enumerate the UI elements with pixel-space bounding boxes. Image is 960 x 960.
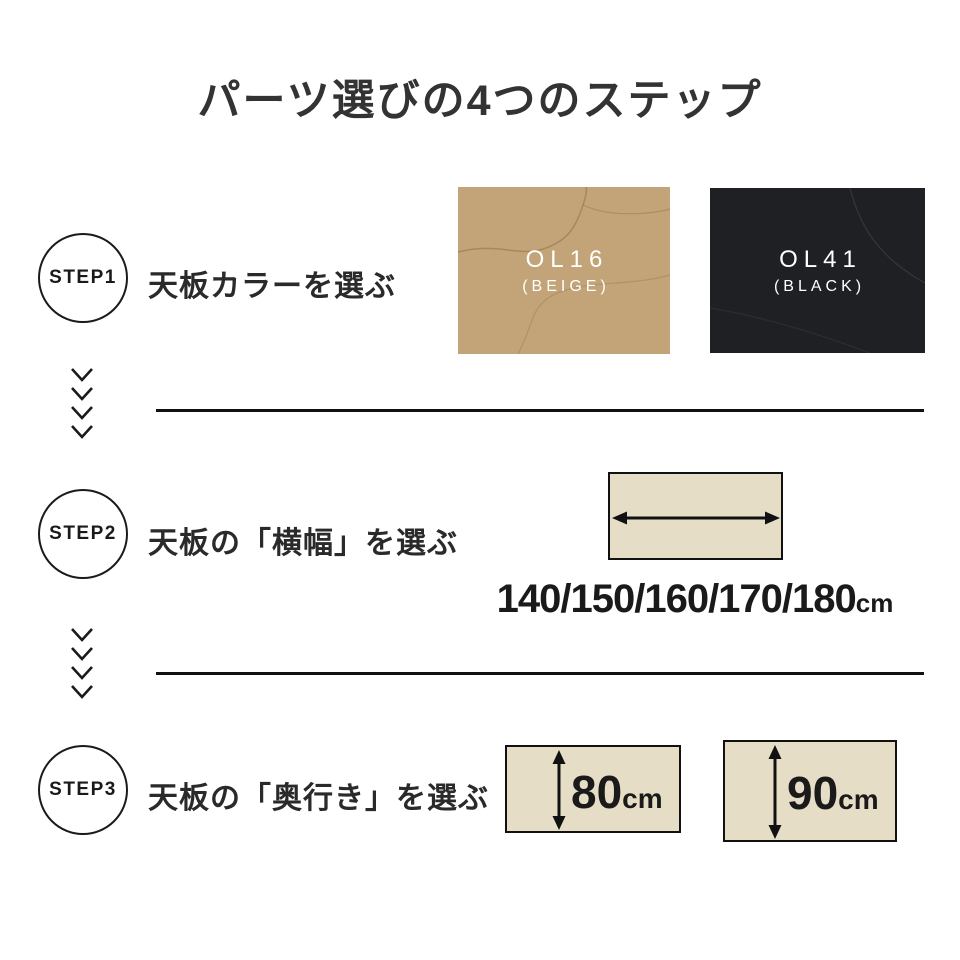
step3-badge-label: STEP3 bbox=[49, 779, 117, 801]
vertical-double-arrow-icon bbox=[767, 745, 783, 839]
chevron-down-icon bbox=[70, 424, 94, 440]
steps-infographic: パーツ選びの4つのステップ STEP1 天板カラーを選ぶ OL16 (BEIGE… bbox=[0, 0, 960, 960]
chevron-down-icon bbox=[70, 367, 94, 383]
step2-to-step3-arrows bbox=[68, 627, 96, 703]
chevron-down-icon bbox=[70, 646, 94, 662]
chevron-down-icon bbox=[70, 405, 94, 421]
step1-badge: STEP1 bbox=[38, 233, 128, 323]
swatch-black-code: OL41 bbox=[773, 246, 862, 274]
chevron-down-icon bbox=[70, 665, 94, 681]
depth-80-text: 80cm bbox=[571, 765, 663, 819]
page-title: パーツ選びの4つのステップ bbox=[0, 66, 960, 128]
depth-90-value: 90 bbox=[787, 767, 838, 819]
color-swatch-black: OL41 (BLACK) bbox=[710, 188, 925, 353]
chevron-down-icon bbox=[70, 627, 94, 643]
width-values: 140/150/160/170/180 bbox=[497, 577, 856, 621]
chevron-down-icon bbox=[70, 684, 94, 700]
depth-option-80-panel: 80cm bbox=[505, 745, 681, 833]
divider bbox=[156, 409, 924, 412]
swatch-black-name: (BLACK) bbox=[770, 278, 865, 296]
depth-90-unit: cm bbox=[838, 784, 878, 815]
step1-badge-label: STEP1 bbox=[49, 267, 117, 289]
vertical-double-arrow-icon bbox=[551, 750, 567, 830]
chevron-down-icon bbox=[70, 386, 94, 402]
horizontal-double-arrow-icon bbox=[612, 510, 780, 526]
step1-label: 天板カラーを選ぶ bbox=[148, 261, 396, 305]
divider bbox=[156, 672, 924, 675]
step3-badge: STEP3 bbox=[38, 745, 128, 835]
swatch-beige-code: OL16 bbox=[520, 246, 609, 274]
step2-badge: STEP2 bbox=[38, 489, 128, 579]
step3-label: 天板の「奥行き」を選ぶ bbox=[148, 773, 489, 817]
width-unit: cm bbox=[856, 588, 894, 618]
width-options-text: 140/150/160/170/180cm bbox=[445, 577, 945, 622]
swatch-beige-name: (BEIGE) bbox=[518, 278, 610, 296]
depth-option-90-panel: 90cm bbox=[723, 740, 897, 842]
tabletop-width-panel bbox=[608, 472, 783, 560]
step1-to-step2-arrows bbox=[68, 367, 96, 443]
depth-80-unit: cm bbox=[622, 783, 662, 814]
step2-badge-label: STEP2 bbox=[49, 523, 117, 545]
depth-80-value: 80 bbox=[571, 766, 622, 818]
color-swatch-beige: OL16 (BEIGE) bbox=[458, 187, 670, 354]
step2-label: 天板の「横幅」を選ぶ bbox=[148, 518, 458, 562]
depth-90-text: 90cm bbox=[787, 766, 879, 820]
